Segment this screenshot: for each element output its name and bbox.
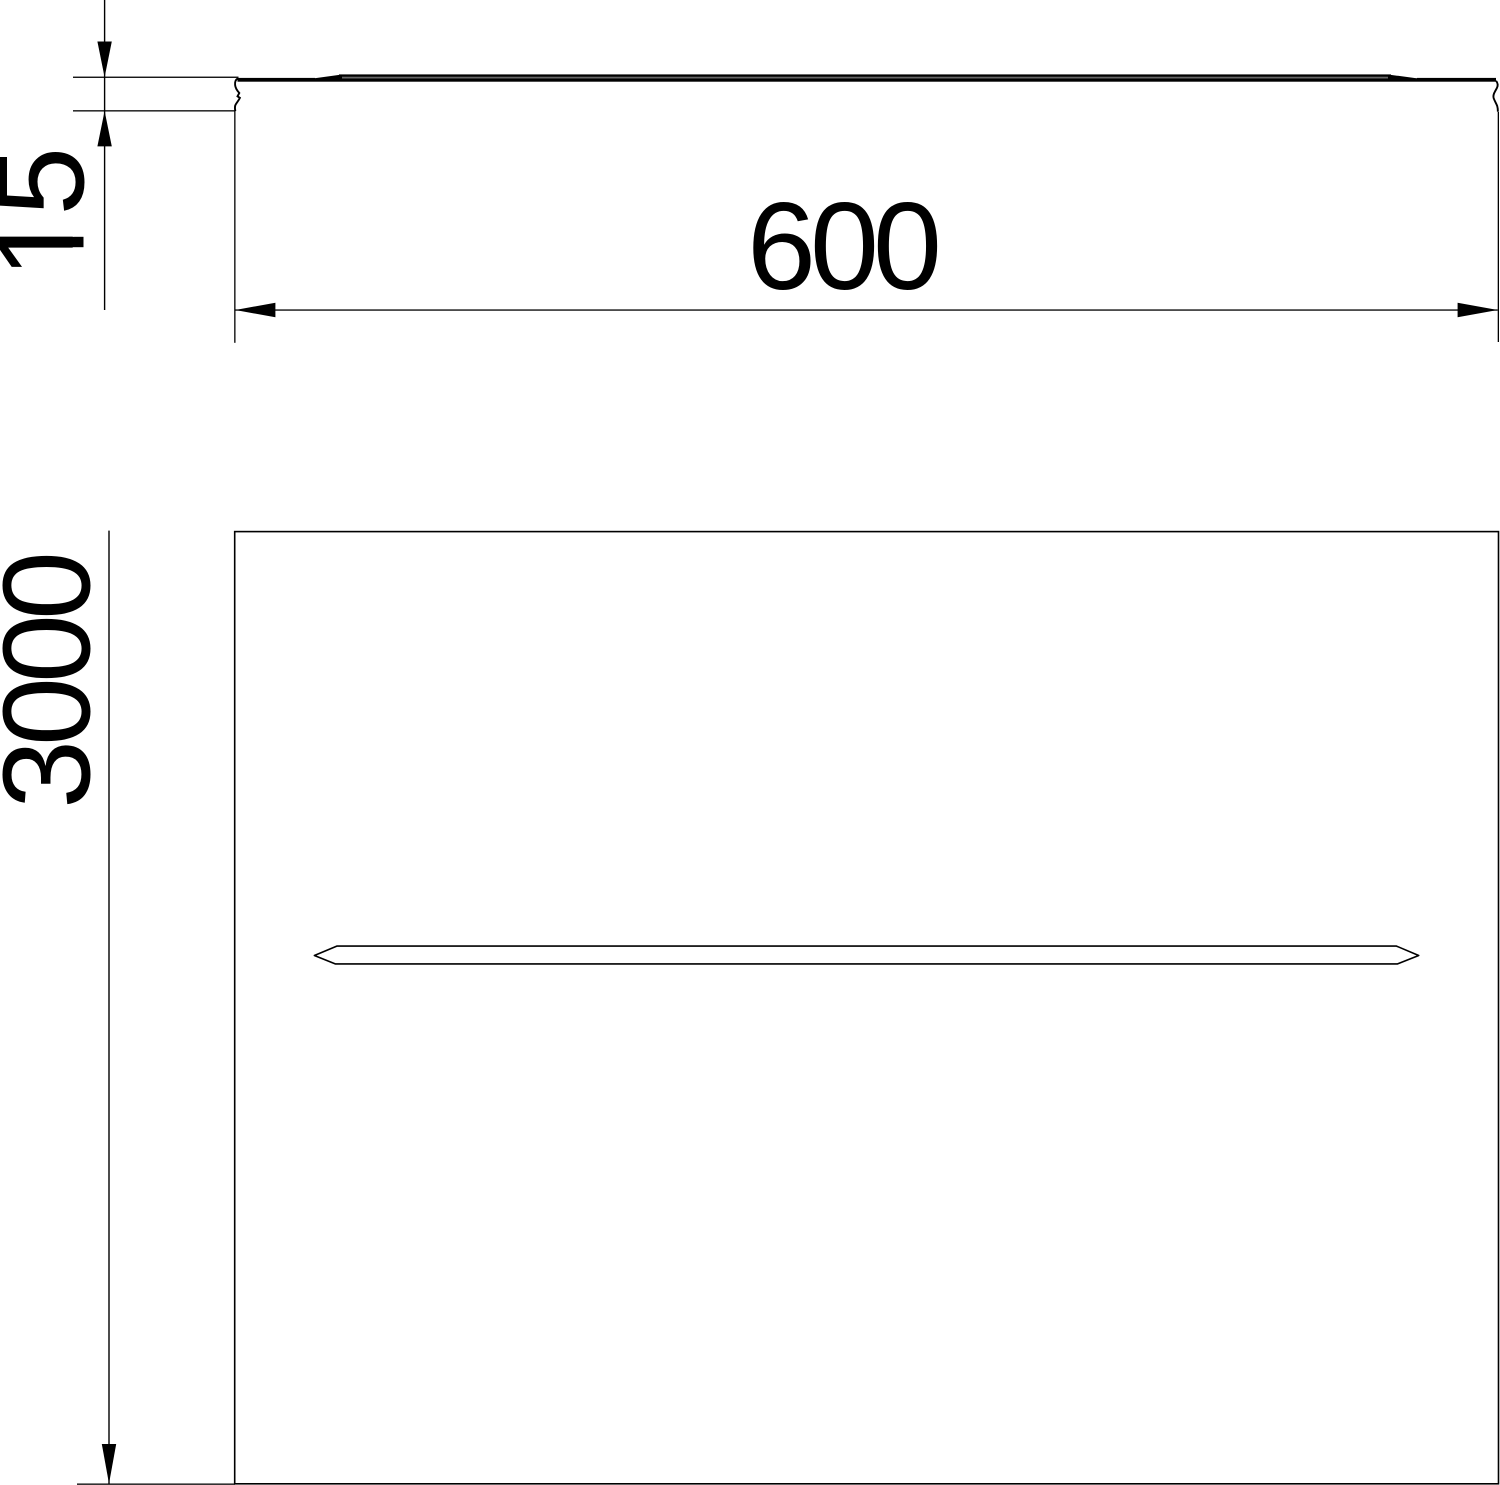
svg-text:15: 15 bbox=[0, 152, 111, 279]
svg-text:3000: 3000 bbox=[0, 555, 117, 809]
svg-text:600: 600 bbox=[747, 178, 938, 316]
